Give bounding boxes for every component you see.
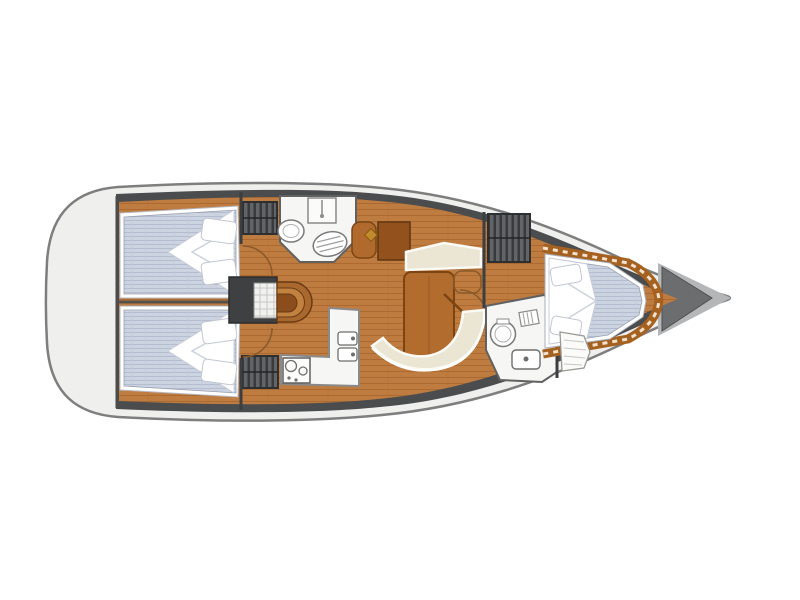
pillow bbox=[201, 218, 238, 245]
aft-cabin-starboard bbox=[120, 306, 240, 397]
floor-plan-canvas bbox=[0, 0, 800, 600]
aft-cabin-port bbox=[120, 206, 240, 298]
shower-grate-icon bbox=[519, 310, 539, 327]
pillow bbox=[201, 359, 238, 386]
wardrobe-aft-top bbox=[243, 202, 277, 234]
toilet-icon bbox=[278, 220, 304, 242]
engine-hatch bbox=[254, 283, 279, 318]
wardrobe-galley bbox=[242, 356, 278, 388]
yacht-floor-plan-image bbox=[0, 0, 800, 600]
nav-station bbox=[352, 222, 410, 260]
aft-head bbox=[278, 196, 356, 262]
companionway bbox=[229, 277, 312, 323]
toilet-icon bbox=[491, 322, 516, 347]
wardrobe-salon bbox=[488, 214, 530, 262]
